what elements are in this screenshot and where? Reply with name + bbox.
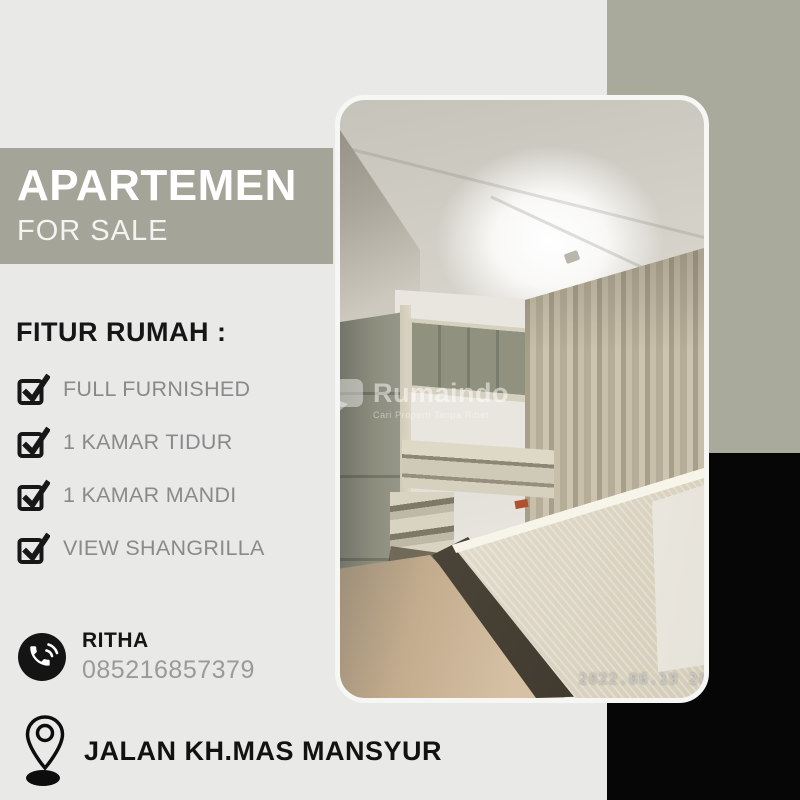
address-text: JALAN KH.MAS MANSYUR	[84, 736, 442, 767]
feature-label: FULL FURNISHED	[63, 377, 250, 402]
camera-timestamp: 2022.06.19 20	[579, 670, 709, 688]
checkbox-checked-icon	[16, 478, 50, 512]
checkbox-checked-icon	[16, 372, 50, 406]
contact-section: RITHA 085216857379	[18, 629, 255, 685]
feature-item: FULL FURNISHED	[16, 372, 326, 406]
feature-item: VIEW SHANGRILLA	[16, 531, 326, 565]
features-heading: FITUR RUMAH :	[16, 316, 326, 348]
photo-shelf-unit	[402, 440, 554, 499]
checkbox-checked-icon	[16, 531, 50, 565]
feature-label: 1 KAMAR TIDUR	[63, 430, 233, 455]
checkbox-checked-icon	[16, 425, 50, 459]
title-banner: APARTEMEN FOR SALE	[0, 148, 333, 264]
feature-item: 1 KAMAR TIDUR	[16, 425, 326, 459]
location-pin-icon	[22, 712, 68, 790]
rumaindo-logo-icon	[335, 378, 364, 414]
feature-item: 1 KAMAR MANDI	[16, 478, 326, 512]
contact-name: RITHA	[82, 629, 255, 653]
feature-label: 1 KAMAR MANDI	[63, 483, 237, 508]
feature-label: VIEW SHANGRILLA	[63, 536, 265, 561]
watermark-text: Rumaindo Cari Properti Tanpa Ribet	[373, 378, 509, 420]
poster-title: APARTEMEN	[17, 164, 333, 208]
watermark-brand: Rumaindo	[373, 378, 509, 408]
phone-call-icon	[18, 633, 66, 681]
features-section: FITUR RUMAH : FULL FURNISHED 1 KAMAR TID…	[16, 316, 326, 565]
flyer-canvas: Rumaindo Cari Properti Tanpa Ribet 2022.…	[0, 0, 800, 800]
watermark: Rumaindo Cari Properti Tanpa Ribet	[335, 378, 509, 420]
contact-text: RITHA 085216857379	[82, 629, 255, 685]
poster-subtitle: FOR SALE	[17, 215, 333, 248]
address-section: JALAN KH.MAS MANSYUR	[22, 712, 442, 790]
contact-phone: 085216857379	[82, 656, 255, 685]
watermark-tagline: Cari Properti Tanpa Ribet	[373, 410, 509, 420]
listing-photo: Rumaindo Cari Properti Tanpa Ribet 2022.…	[335, 95, 709, 703]
